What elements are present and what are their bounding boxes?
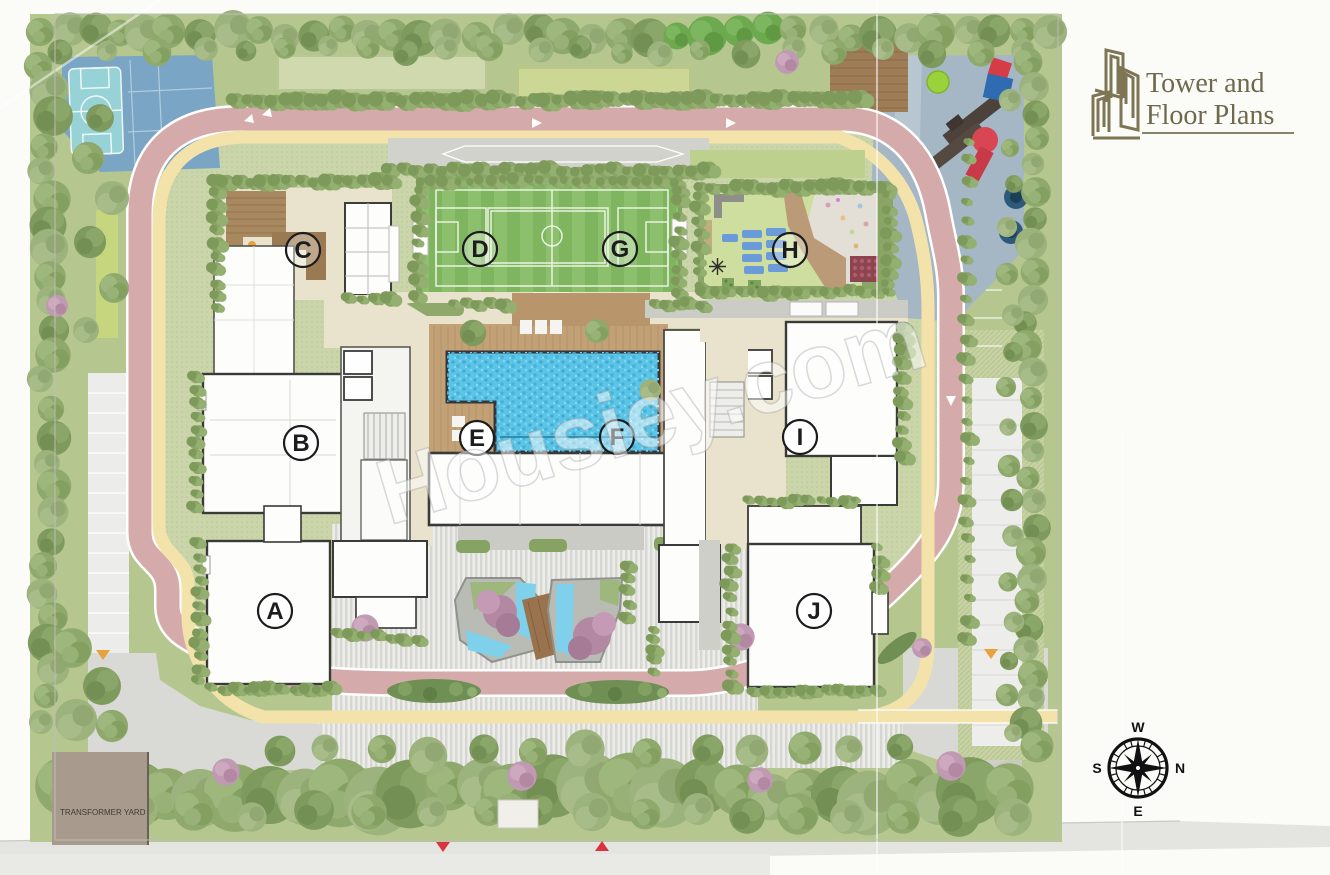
svg-text:J: J [807,598,820,625]
svg-text:Tower and: Tower and [1146,68,1265,99]
svg-text:N: N [1175,760,1185,776]
svg-text:A: A [266,598,283,625]
svg-text:TRANSFORMER YARD: TRANSFORMER YARD [60,808,146,817]
svg-text:W: W [1131,719,1145,735]
svg-text:B: B [292,430,309,457]
svg-text:S: S [1092,760,1101,776]
svg-text:Floor Plans: Floor Plans [1146,100,1274,131]
svg-text:G: G [611,236,630,263]
svg-text:I: I [797,424,804,451]
svg-text:E: E [1133,803,1142,819]
svg-text:H: H [781,237,798,264]
svg-text:C: C [294,237,311,264]
svg-text:D: D [471,236,488,263]
